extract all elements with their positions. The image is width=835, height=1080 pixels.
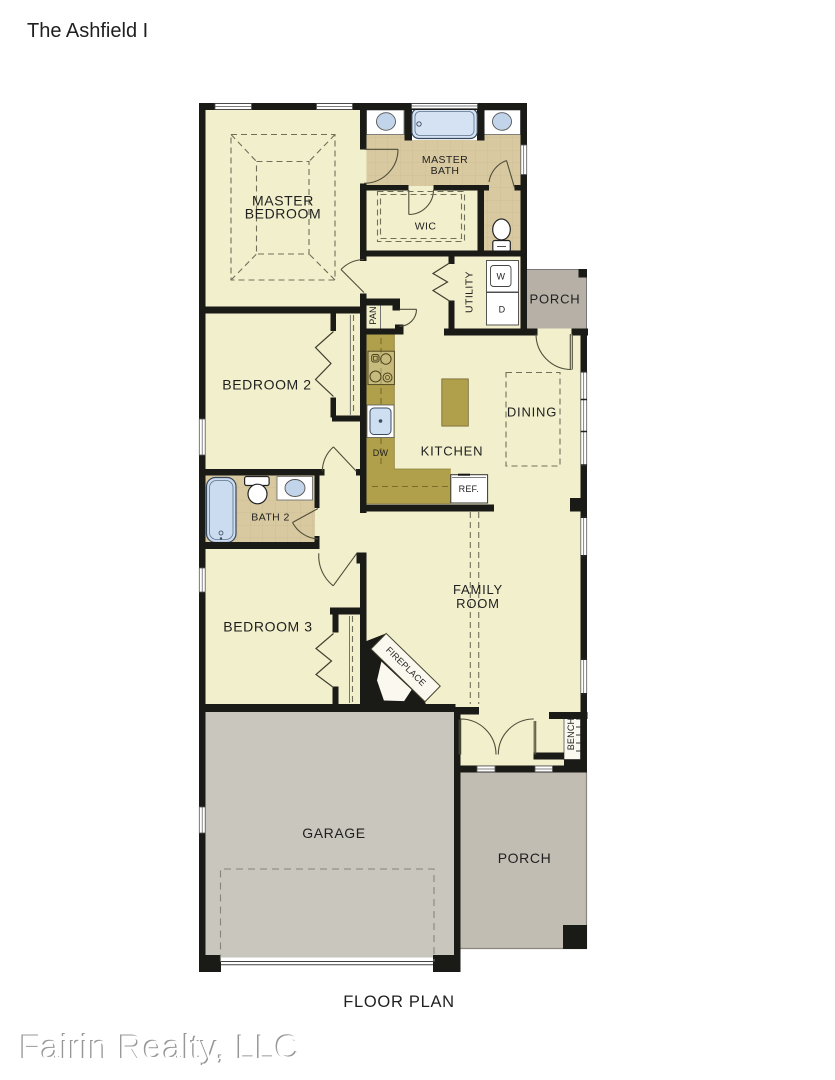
svg-text:BATH: BATH: [431, 165, 460, 177]
svg-text:Fairin Realty, LLC: Fairin Realty, LLC: [20, 1029, 300, 1067]
svg-text:ROOM: ROOM: [456, 596, 500, 611]
svg-text:PAN: PAN: [368, 306, 378, 324]
svg-text:BEDROOM 2: BEDROOM 2: [222, 377, 311, 393]
svg-text:W: W: [496, 272, 505, 282]
svg-text:PORCH: PORCH: [530, 292, 581, 307]
svg-text:DINING: DINING: [507, 405, 557, 420]
svg-text:BATH 2: BATH 2: [251, 512, 289, 524]
svg-text:KITCHEN: KITCHEN: [421, 444, 484, 459]
svg-text:UTILITY: UTILITY: [464, 271, 476, 313]
svg-text:BENCH: BENCH: [566, 718, 576, 751]
svg-text:WIC: WIC: [415, 221, 437, 233]
svg-text:DW: DW: [373, 448, 389, 458]
svg-text:REF.: REF.: [459, 484, 479, 494]
svg-text:PORCH: PORCH: [498, 850, 552, 866]
svg-text:D: D: [499, 305, 506, 315]
svg-text:The Ashfield I: The Ashfield I: [27, 20, 148, 42]
svg-text:BEDROOM 3: BEDROOM 3: [223, 619, 312, 635]
svg-text:FAMILY: FAMILY: [453, 582, 503, 597]
svg-text:GARAGE: GARAGE: [302, 825, 366, 841]
svg-text:BEDROOM: BEDROOM: [245, 206, 322, 222]
svg-text:FLOOR PLAN: FLOOR PLAN: [343, 993, 455, 1011]
